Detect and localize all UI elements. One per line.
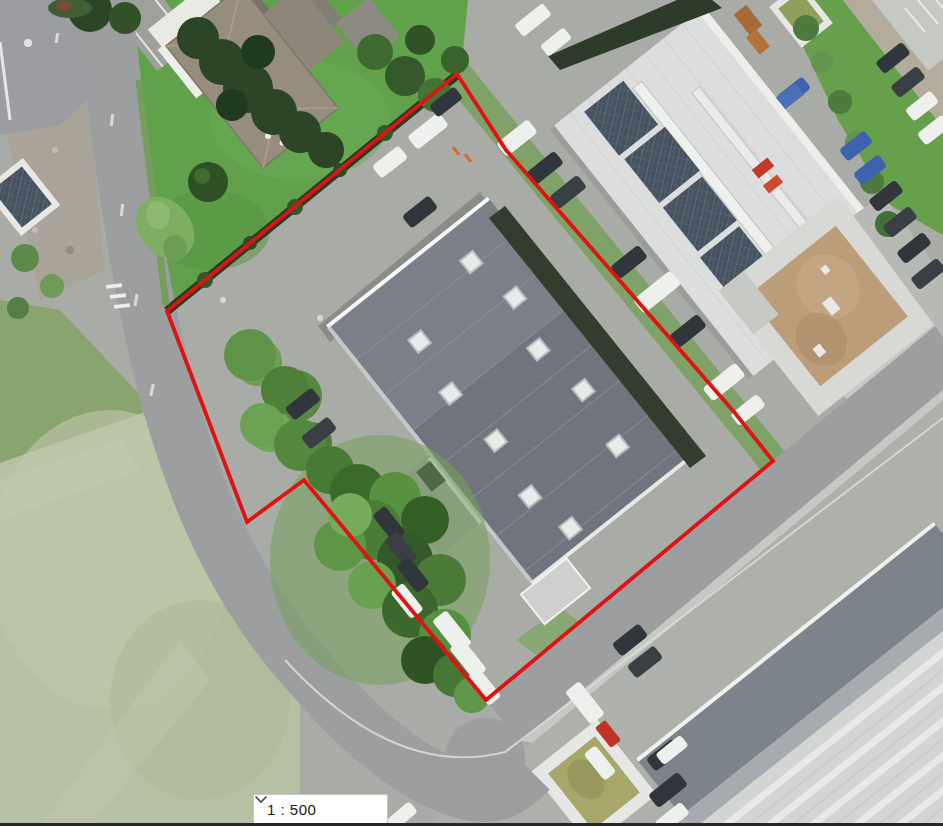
map-viewport[interactable]: 1 : 500 [0,0,943,826]
scale-value: 1 : 500 [267,801,377,818]
chevron-down-icon [254,795,268,804]
aerial-map-canvas[interactable] [0,0,943,826]
scale-select[interactable]: 1 : 500 [253,794,388,824]
